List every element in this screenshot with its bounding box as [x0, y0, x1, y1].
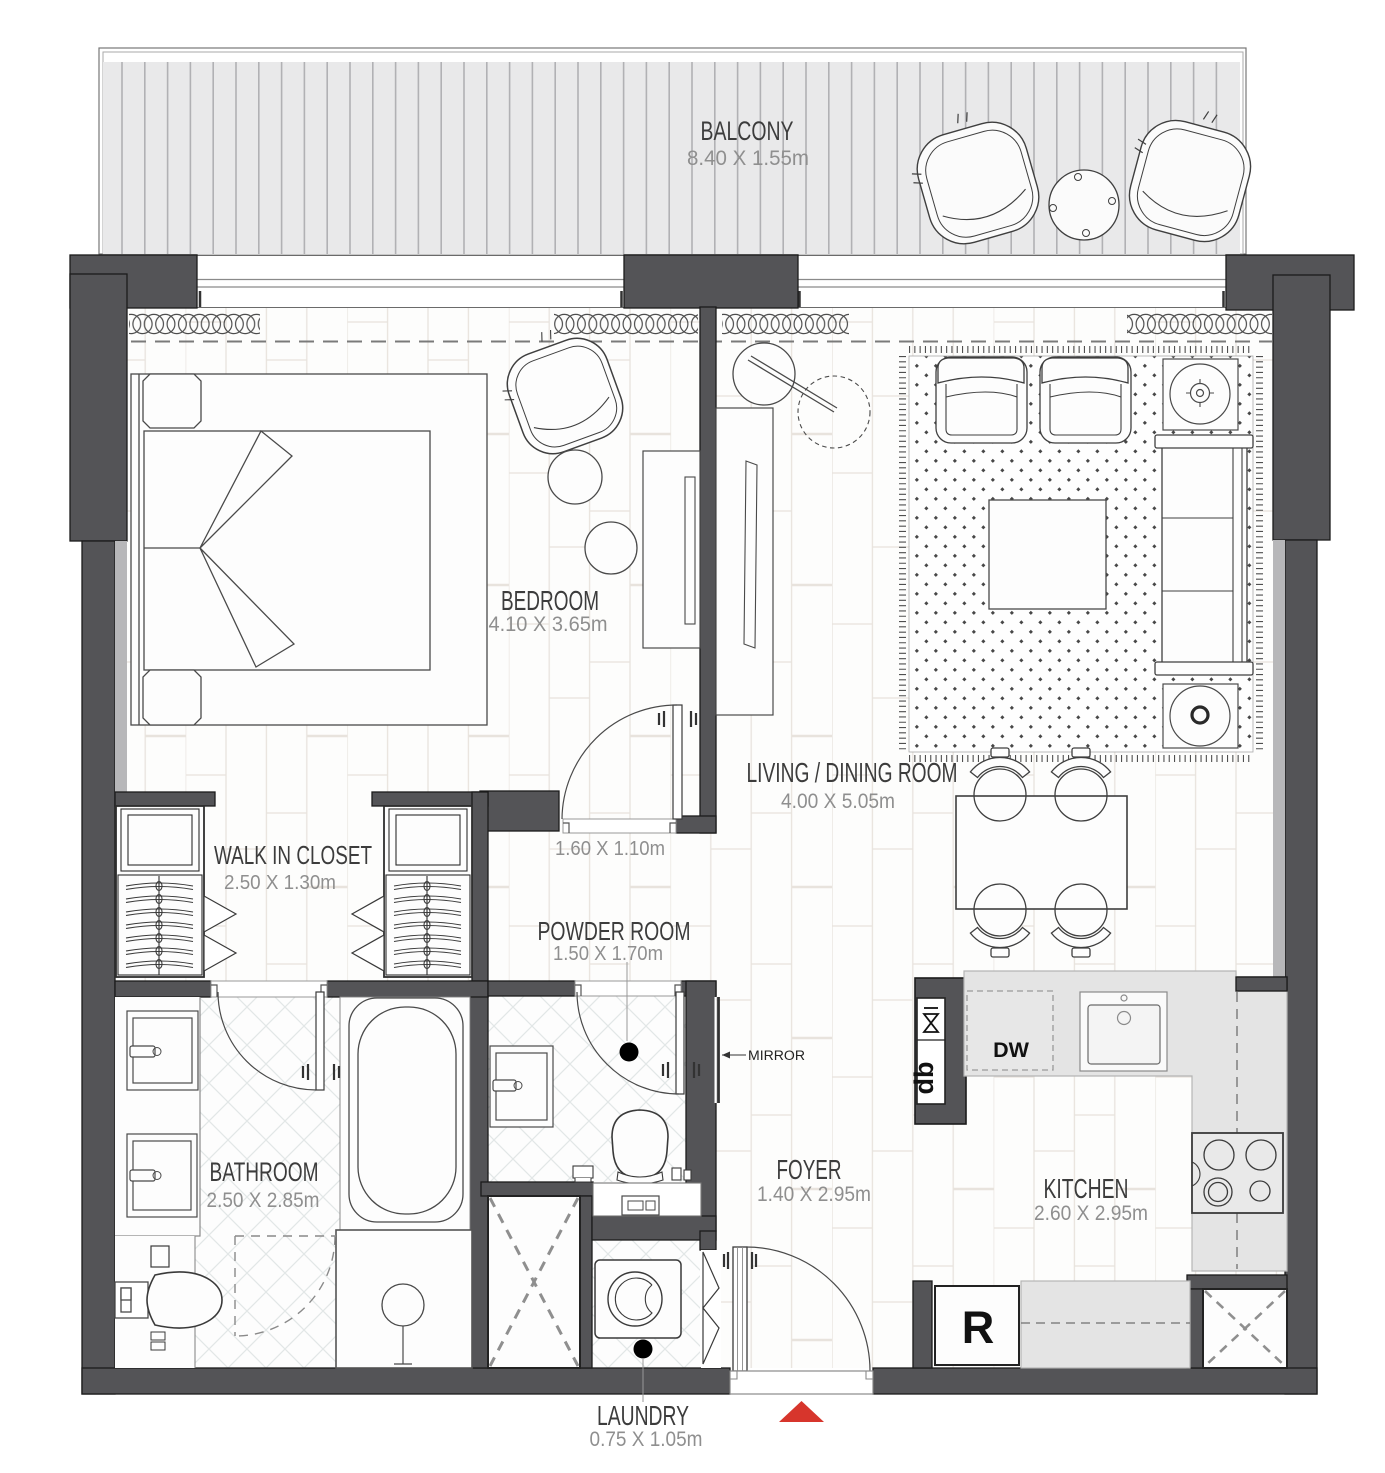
svg-text:KITCHEN: KITCHEN — [1044, 1173, 1129, 1204]
svg-text:1.60 X 1.10m: 1.60 X 1.10m — [555, 838, 665, 860]
svg-text:4.10 X 3.65m: 4.10 X 3.65m — [489, 613, 608, 636]
svg-text:8.40 X 1.55m: 8.40 X 1.55m — [687, 147, 809, 170]
svg-text:R: R — [962, 1302, 995, 1353]
svg-text:MIRROR: MIRROR — [748, 1048, 805, 1063]
svg-text:LIVING / DINING ROOM: LIVING / DINING ROOM — [747, 757, 958, 788]
svg-text:LAUNDRY: LAUNDRY — [597, 1400, 689, 1431]
svg-text:1.50 X 1.70m: 1.50 X 1.70m — [553, 943, 663, 965]
svg-text:2.60 X 2.95m: 2.60 X 2.95m — [1034, 1202, 1148, 1225]
svg-text:db: db — [909, 1062, 939, 1095]
svg-text:DW: DW — [993, 1038, 1030, 1062]
svg-text:WALK IN CLOSET: WALK IN CLOSET — [214, 840, 372, 870]
svg-text:2.50 X 2.85m: 2.50 X 2.85m — [207, 1189, 320, 1212]
svg-text:FOYER: FOYER — [777, 1154, 842, 1185]
svg-text:POWDER ROOM: POWDER ROOM — [538, 916, 691, 946]
svg-text:1.40 X 2.95m: 1.40 X 2.95m — [757, 1183, 871, 1206]
svg-text:BEDROOM: BEDROOM — [501, 585, 599, 616]
svg-text:0.75 X 1.05m: 0.75 X 1.05m — [590, 1428, 703, 1451]
svg-text:4.00 X 5.05m: 4.00 X 5.05m — [781, 790, 895, 813]
svg-text:BATHROOM: BATHROOM — [210, 1157, 319, 1187]
svg-text:BALCONY: BALCONY — [701, 116, 794, 146]
svg-text:2.50 X 1.30m: 2.50 X 1.30m — [224, 872, 336, 894]
